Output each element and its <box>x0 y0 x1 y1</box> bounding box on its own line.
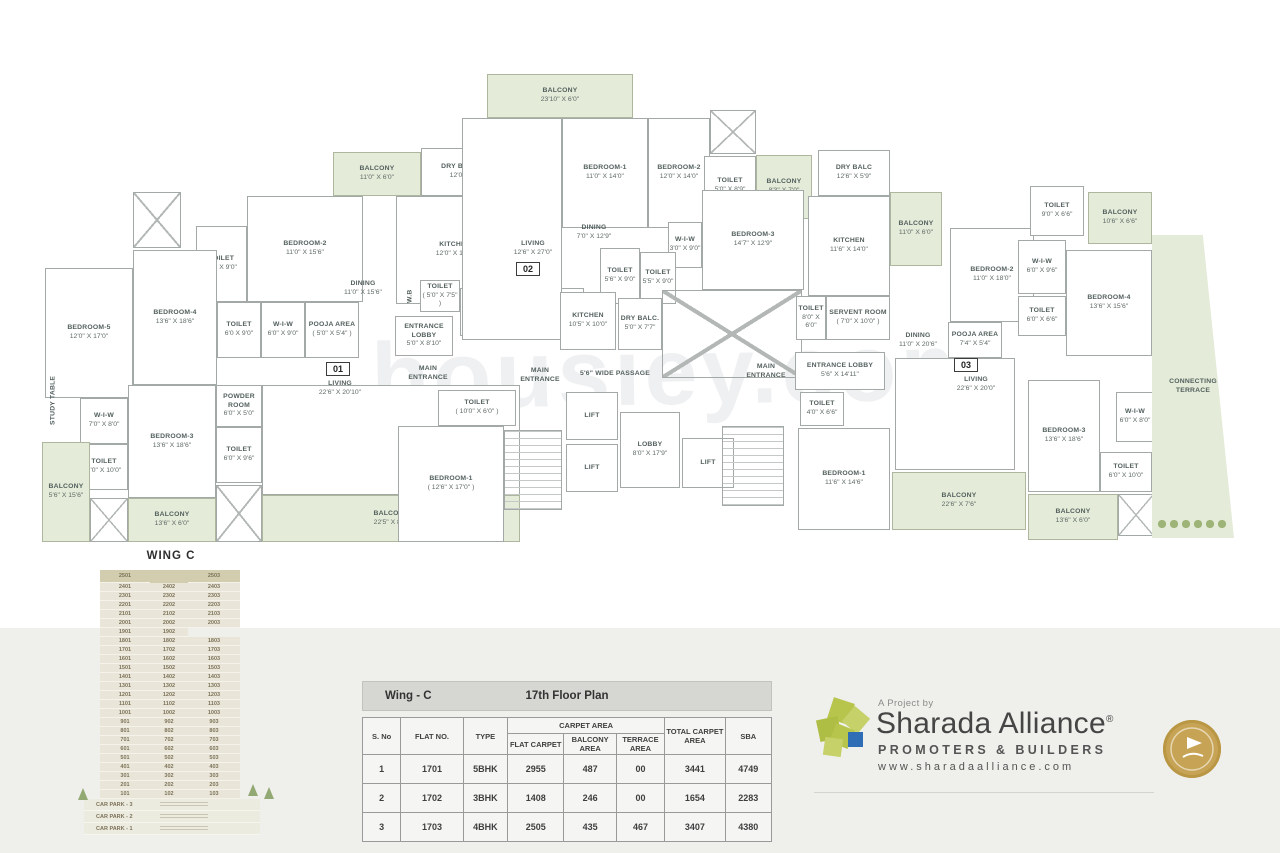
flat-203: 203 <box>188 781 240 790</box>
cell: 00 <box>616 755 664 784</box>
powder-room: POWDER ROOM6'0" X 5'0" <box>216 385 262 427</box>
flat-101: 101 <box>100 790 150 799</box>
cell: 1 <box>363 755 401 784</box>
flat-103: 103 <box>188 790 240 799</box>
5-6-wide-passage-label: 5'6" WIDE PASSAGE <box>570 366 660 382</box>
toilet: TOILET4'0" X 6'6" <box>800 392 844 426</box>
area-table-head: S. NoFLAT NO.TYPECARPET AREATOTAL CARPET… <box>363 718 772 755</box>
cell: 1654 <box>665 784 725 813</box>
flat-202: 202 <box>150 781 188 790</box>
flat-1802: 1802 <box>150 637 188 646</box>
duct-cross-icon <box>1118 494 1154 536</box>
gold-badge-icon <box>1163 720 1221 778</box>
floor-row: 230123022303 <box>100 592 240 601</box>
carpark-label: CAR PARK - 1 <box>96 826 160 832</box>
bedroom-3: BEDROOM-313'6" X 18'6" <box>1028 380 1100 492</box>
dining-label: DINING11'0" X 15'6" <box>322 276 404 302</box>
flat-2403: 2403 <box>188 583 240 592</box>
registered-mark: ® <box>1106 714 1114 725</box>
balcony: BALCONY5'6" X 15'6" <box>42 442 90 542</box>
floor-row: 140114021403 <box>100 673 240 682</box>
floor-row: 220122022203 <box>100 601 240 610</box>
cell: 1408 <box>508 784 564 813</box>
cell: 467 <box>616 813 664 842</box>
flat-1002: 1002 <box>150 709 188 718</box>
brand-divider <box>814 792 1154 793</box>
connecting-terrace: CONNECTING TERRACE <box>1152 235 1234 538</box>
carpark-detail-lines <box>160 802 208 808</box>
col-group-carpet-area: CARPET AREA <box>508 718 665 734</box>
cell: 3407 <box>665 813 725 842</box>
flat-1303: 1303 <box>188 682 240 691</box>
empty-cell <box>150 570 188 583</box>
col-header-s-no: S. No <box>363 718 401 755</box>
col-header-total-carpet-area: TOTAL CARPET AREA <box>665 718 725 755</box>
floor-row: 150115021503 <box>100 664 240 673</box>
cell: 435 <box>564 813 616 842</box>
carpark-detail-lines <box>160 814 208 820</box>
branding: A Project by Sharada Alliance® PROMOTERS… <box>812 690 1232 800</box>
flat-1503: 1503 <box>188 664 240 673</box>
floor-row: 301302303 <box>100 772 240 781</box>
lift: LIFT <box>566 392 618 440</box>
carpark-row: CAR PARK - 1 <box>84 823 260 835</box>
flat-1401: 1401 <box>100 673 150 682</box>
cell: 2 <box>363 784 401 813</box>
flat-1701: 1701 <box>100 646 150 655</box>
col-subheader-flat-carpet: FLAT CARPET <box>508 734 564 755</box>
bedroom-1: BEDROOM-1( 12'6" X 17'0" ) <box>398 426 504 542</box>
floor-row: 240124022403 <box>100 583 240 592</box>
flat-2503: 2503 <box>188 570 240 583</box>
room <box>462 118 562 340</box>
floor-row: 201202203 <box>100 781 240 790</box>
floor-plan: housiey.com BALCONY11'0" X 6'0"DRY BALCO… <box>0 0 1280 560</box>
balcony: BALCONY13'6" X 6'0" <box>1028 494 1118 540</box>
tree-icon <box>78 788 88 800</box>
balcony: BALCONY22'6" X 7'6" <box>892 472 1026 530</box>
balcony: BALCONY11'0" X 6'0" <box>333 152 421 196</box>
floor-row: 160116021603 <box>100 655 240 664</box>
flat-2202: 2202 <box>150 601 188 610</box>
brand-tagline: PROMOTERS & BUILDERS <box>878 743 1106 757</box>
cell: 5BHK <box>463 755 507 784</box>
empty-cell <box>188 628 240 637</box>
flat-701: 701 <box>100 736 150 745</box>
flat-1502: 1502 <box>150 664 188 673</box>
floor-row: 901902903 <box>100 718 240 727</box>
flat-2402: 2402 <box>150 583 188 592</box>
brand-name: Sharada Alliance® <box>876 707 1114 741</box>
flat-402: 402 <box>150 763 188 772</box>
bedroom-4: BEDROOM-413'6" X 18'6" <box>133 250 217 385</box>
toilet: TOILET9'0" X 6'6" <box>1030 186 1084 236</box>
duct-cross-icon <box>216 485 262 542</box>
col-header-type: TYPE <box>463 718 507 755</box>
main-entrance-label: MAIN ENTRANCE <box>738 360 794 384</box>
toilet: TOILET6'0" X 9'6" <box>216 427 262 483</box>
floor-row: 100110021003 <box>100 709 240 718</box>
unit-marker-01: 01 <box>326 362 350 376</box>
entrance-lobby: ENTRANCE LOBBY5'0" X 8'10" <box>395 316 453 356</box>
staircase <box>722 426 784 506</box>
balcony: BALCONY13'6" X 6'0" <box>128 498 216 542</box>
table-floor-label: 17th Floor Plan <box>363 690 771 702</box>
flat-403: 403 <box>188 763 240 772</box>
kitchen: KITCHEN10'5" X 10'0" <box>560 292 616 350</box>
flat-303: 303 <box>188 772 240 781</box>
flat-602: 602 <box>150 745 188 754</box>
shrubs-icon <box>1156 518 1228 530</box>
flat-2302: 2302 <box>150 592 188 601</box>
flat-1902: 1902 <box>150 628 188 637</box>
toilet: TOILET6'0 X 9'0" <box>217 302 261 358</box>
toilet: TOILET( 5'0" X 7'5" ) <box>420 280 460 312</box>
stack-title: WING C <box>96 550 246 562</box>
flat-2102: 2102 <box>150 610 188 619</box>
flat-1602: 1602 <box>150 655 188 664</box>
unit-marker-02: 02 <box>516 262 540 276</box>
table-header-bar: Wing - C 17th Floor Plan <box>362 681 772 711</box>
flat-2401: 2401 <box>100 583 150 592</box>
lift: LIFT <box>566 444 618 492</box>
w-i-w: W-I-W6'0" X 8'0" <box>1116 392 1154 442</box>
bedroom-4: BEDROOM-413'6" X 15'6" <box>1066 250 1152 356</box>
dry-balc: DRY BALC12'6" X 5'9" <box>818 150 890 196</box>
flat-1601: 1601 <box>100 655 150 664</box>
dining-label: DINING7'0" X 12'9" <box>565 220 623 246</box>
toilet: TOILET6'0" X 10'0" <box>1100 452 1152 492</box>
flat-1801: 1801 <box>100 637 150 646</box>
lobby: LOBBY8'0" X 17'9" <box>620 412 680 488</box>
w-i-w: W-I-W7'0" X 8'0" <box>80 398 128 444</box>
living-label: LIVING22'6" X 20'10" <box>300 376 380 402</box>
cell: 00 <box>616 784 664 813</box>
flat-901: 901 <box>100 718 150 727</box>
cell: 2505 <box>508 813 564 842</box>
unit-marker-03: 03 <box>954 358 978 372</box>
cell: 3 <box>363 813 401 842</box>
servent-room: SERVENT ROOM( 7'0" X 10'0" ) <box>826 296 890 340</box>
cell: 246 <box>564 784 616 813</box>
toilet: TOILET( 10'0" X 6'0" ) <box>438 390 516 426</box>
flat-503: 503 <box>188 754 240 763</box>
floor-row: 130113021303 <box>100 682 240 691</box>
flat-201: 201 <box>100 781 150 790</box>
area-table: S. NoFLAT NO.TYPECARPET AREATOTAL CARPET… <box>362 717 772 842</box>
pooja-area: POOJA AREA( 5'0" X 5'4" ) <box>305 302 359 358</box>
cell: 2283 <box>725 784 771 813</box>
flat-102: 102 <box>150 790 188 799</box>
flat-301: 301 <box>100 772 150 781</box>
flat-row-1703: 317034BHK250543546734074380 <box>363 813 772 842</box>
flat-703: 703 <box>188 736 240 745</box>
flat-1703: 1703 <box>188 646 240 655</box>
cell: 4BHK <box>463 813 507 842</box>
flat-2303: 2303 <box>188 592 240 601</box>
floor-row: 19011902 <box>100 628 240 637</box>
pooja-area: POOJA AREA7'4" X 5'4" <box>948 322 1002 358</box>
bedroom-3: BEDROOM-313'6" X 18'6" <box>128 385 216 498</box>
floor-row: 200120022003 <box>100 619 240 628</box>
cell: 1701 <box>401 755 463 784</box>
flat-row-1701: 117015BHK29554870034414749 <box>363 755 772 784</box>
col-header-flat-no: FLAT NO. <box>401 718 463 755</box>
floor-row: 210121022103 <box>100 610 240 619</box>
flat-1403: 1403 <box>188 673 240 682</box>
cell: 3BHK <box>463 784 507 813</box>
flat-2101: 2101 <box>100 610 150 619</box>
carpark-row: CAR PARK - 3 <box>84 799 260 811</box>
toilet: TOILET6'0" X 6'6" <box>1018 296 1066 336</box>
flat-1302: 1302 <box>150 682 188 691</box>
bedroom-2: BEDROOM-212'0" X 14'0" <box>648 118 710 228</box>
flat-501: 501 <box>100 754 150 763</box>
floor-row: 170117021703 <box>100 646 240 655</box>
kitchen: KITCHEN11'6" X 14'0" <box>808 196 890 296</box>
living-label: LIVING22'6" X 20'0" <box>938 372 1014 398</box>
carpark-label: CAR PARK - 3 <box>96 802 160 808</box>
living-label: LIVING12'6" X 27'0" <box>495 236 571 262</box>
staircase <box>504 430 562 510</box>
flat-2001: 2001 <box>100 619 150 628</box>
floor-row: 401402403 <box>100 763 240 772</box>
col-subheader-balcony-area: BALCONY AREA <box>564 734 616 755</box>
duct-cross-icon <box>133 192 181 248</box>
flat-902: 902 <box>150 718 188 727</box>
cell: 4749 <box>725 755 771 784</box>
flat-803: 803 <box>188 727 240 736</box>
flat-1901: 1901 <box>100 628 150 637</box>
flat-1301: 1301 <box>100 682 150 691</box>
main-entrance-label: MAIN ENTRANCE <box>512 364 568 388</box>
flat-2003: 2003 <box>188 619 240 628</box>
flat-401: 401 <box>100 763 150 772</box>
flat-702: 702 <box>150 736 188 745</box>
cell: 487 <box>564 755 616 784</box>
floor-row: 701702703 <box>100 736 240 745</box>
flat-2103: 2103 <box>188 610 240 619</box>
flat-802: 802 <box>150 727 188 736</box>
floor-row: 101102103 <box>100 790 240 799</box>
tree-icon <box>248 784 258 796</box>
bedroom-1: BEDROOM-111'0" X 14'0" <box>562 118 648 228</box>
flat-1001: 1001 <box>100 709 150 718</box>
brand-logo-icon <box>812 696 874 764</box>
tree-icon <box>264 787 274 799</box>
dry-balc: DRY BALC.5'0" X 7'7" <box>618 298 662 350</box>
flat-1003: 1003 <box>188 709 240 718</box>
floor-row: 601602603 <box>100 745 240 754</box>
flat-1103: 1103 <box>188 700 240 709</box>
bedroom-1: BEDROOM-111'6" X 14'6" <box>798 428 890 530</box>
floor-row: 801802803 <box>100 727 240 736</box>
cell: 1703 <box>401 813 463 842</box>
flat-1501: 1501 <box>100 664 150 673</box>
dining-label: DINING11'0" X 20'6" <box>888 328 948 354</box>
cell: 4380 <box>725 813 771 842</box>
flat-1203: 1203 <box>188 691 240 700</box>
floor-plan-poster: housiey.com BALCONY11'0" X 6'0"DRY BALCO… <box>0 0 1280 853</box>
flat-1201: 1201 <box>100 691 150 700</box>
flat-2301: 2301 <box>100 592 150 601</box>
study-table-label: STUDY TABLE <box>44 368 64 432</box>
col-subheader-terrace-area: TERRACE AREA <box>616 734 664 755</box>
entrance-lobby: ENTRANCE LOBBY5'6" X 14'11" <box>795 352 885 390</box>
cell: 1702 <box>401 784 463 813</box>
flat-2201: 2201 <box>100 601 150 610</box>
flat-1102: 1102 <box>150 700 188 709</box>
carpark-detail-lines <box>160 826 208 832</box>
flat-903: 903 <box>188 718 240 727</box>
bedroom-3: BEDROOM-314'7" X 12'9" <box>702 190 804 290</box>
balcony: BALCONY10'6" X 6'6" <box>1088 192 1152 244</box>
flat-601: 601 <box>100 745 150 754</box>
flat-801: 801 <box>100 727 150 736</box>
balcony: BALCONY11'0" X 6'0" <box>890 192 942 266</box>
flat-2002: 2002 <box>150 619 188 628</box>
flat-502: 502 <box>150 754 188 763</box>
floor-row: 25012503 <box>100 570 240 583</box>
flat-1202: 1202 <box>150 691 188 700</box>
area-table-body: 117015BHK29554870034414749217023BHK14082… <box>363 755 772 842</box>
toilet: TOILET8'0" X 6'0" <box>796 296 826 340</box>
flat-1402: 1402 <box>150 673 188 682</box>
w-b-label: W.B <box>404 280 418 312</box>
flat-1803: 1803 <box>188 637 240 646</box>
w-i-w: W-I-W6'0" X 9'6" <box>1018 240 1066 294</box>
flat-603: 603 <box>188 745 240 754</box>
stack-tower: 2501250324012402240323012302230322012202… <box>100 570 240 799</box>
cell: 2955 <box>508 755 564 784</box>
flat-2501: 2501 <box>100 570 150 583</box>
floor-row: 110111021103 <box>100 700 240 709</box>
stack-carpark: CAR PARK - 3CAR PARK - 2CAR PARK - 1 <box>84 799 260 835</box>
flat-1101: 1101 <box>100 700 150 709</box>
carpark-label: CAR PARK - 2 <box>96 814 160 820</box>
balcony: BALCONY23'10" X 6'0" <box>487 74 633 118</box>
flat-1702: 1702 <box>150 646 188 655</box>
carpark-row: CAR PARK - 2 <box>84 811 260 823</box>
main-entrance-label: MAIN ENTRANCE <box>400 362 456 386</box>
floor-row: 120112021203 <box>100 691 240 700</box>
flat-302: 302 <box>150 772 188 781</box>
flat-1603: 1603 <box>188 655 240 664</box>
duct-cross-icon <box>710 110 756 154</box>
building-stack: WING C 250125032401240224032301230223032… <box>96 550 246 835</box>
floor-row: 180118021803 <box>100 637 240 646</box>
w-i-w: W-I-W6'0" X 9'0" <box>261 302 305 358</box>
cell: 3441 <box>665 755 725 784</box>
flat-row-1702: 217023BHK14082460016542283 <box>363 784 772 813</box>
brand-website: www.sharadaalliance.com <box>878 761 1074 773</box>
floor-row: 501502503 <box>100 754 240 763</box>
col-header-sba: SBA <box>725 718 771 755</box>
flat-2203: 2203 <box>188 601 240 610</box>
duct-cross-icon <box>90 498 128 542</box>
